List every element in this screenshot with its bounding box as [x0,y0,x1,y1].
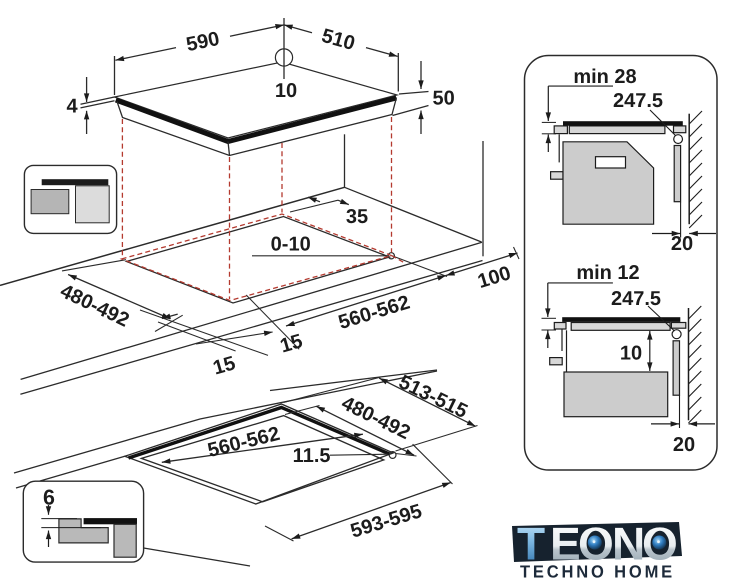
svg-text:593-595: 593-595 [348,500,425,543]
svg-text:100: 100 [475,262,513,293]
svg-text:15: 15 [211,352,238,379]
svg-text:0-10: 0-10 [271,234,311,256]
svg-text:20: 20 [671,233,693,255]
svg-text:247.5: 247.5 [611,288,661,310]
svg-text:35: 35 [346,206,368,228]
svg-text:10: 10 [275,80,297,102]
svg-text:11.5: 11.5 [293,445,331,467]
svg-text:513-515: 513-515 [395,371,471,423]
svg-text:15: 15 [278,330,305,357]
svg-text:50: 50 [432,88,454,110]
svg-text:20: 20 [673,434,695,456]
svg-text:10: 10 [620,342,642,364]
svg-text:min 28: min 28 [573,66,636,88]
svg-text:590: 590 [184,28,221,56]
svg-text:min 12: min 12 [576,262,639,284]
svg-text:510: 510 [319,25,357,55]
svg-text:480-492: 480-492 [57,280,133,331]
svg-text:6: 6 [43,486,55,510]
svg-text:TECHNO HOME: TECHNO HOME [520,562,675,582]
svg-text:4: 4 [66,96,78,118]
svg-text:247.5: 247.5 [613,90,663,112]
